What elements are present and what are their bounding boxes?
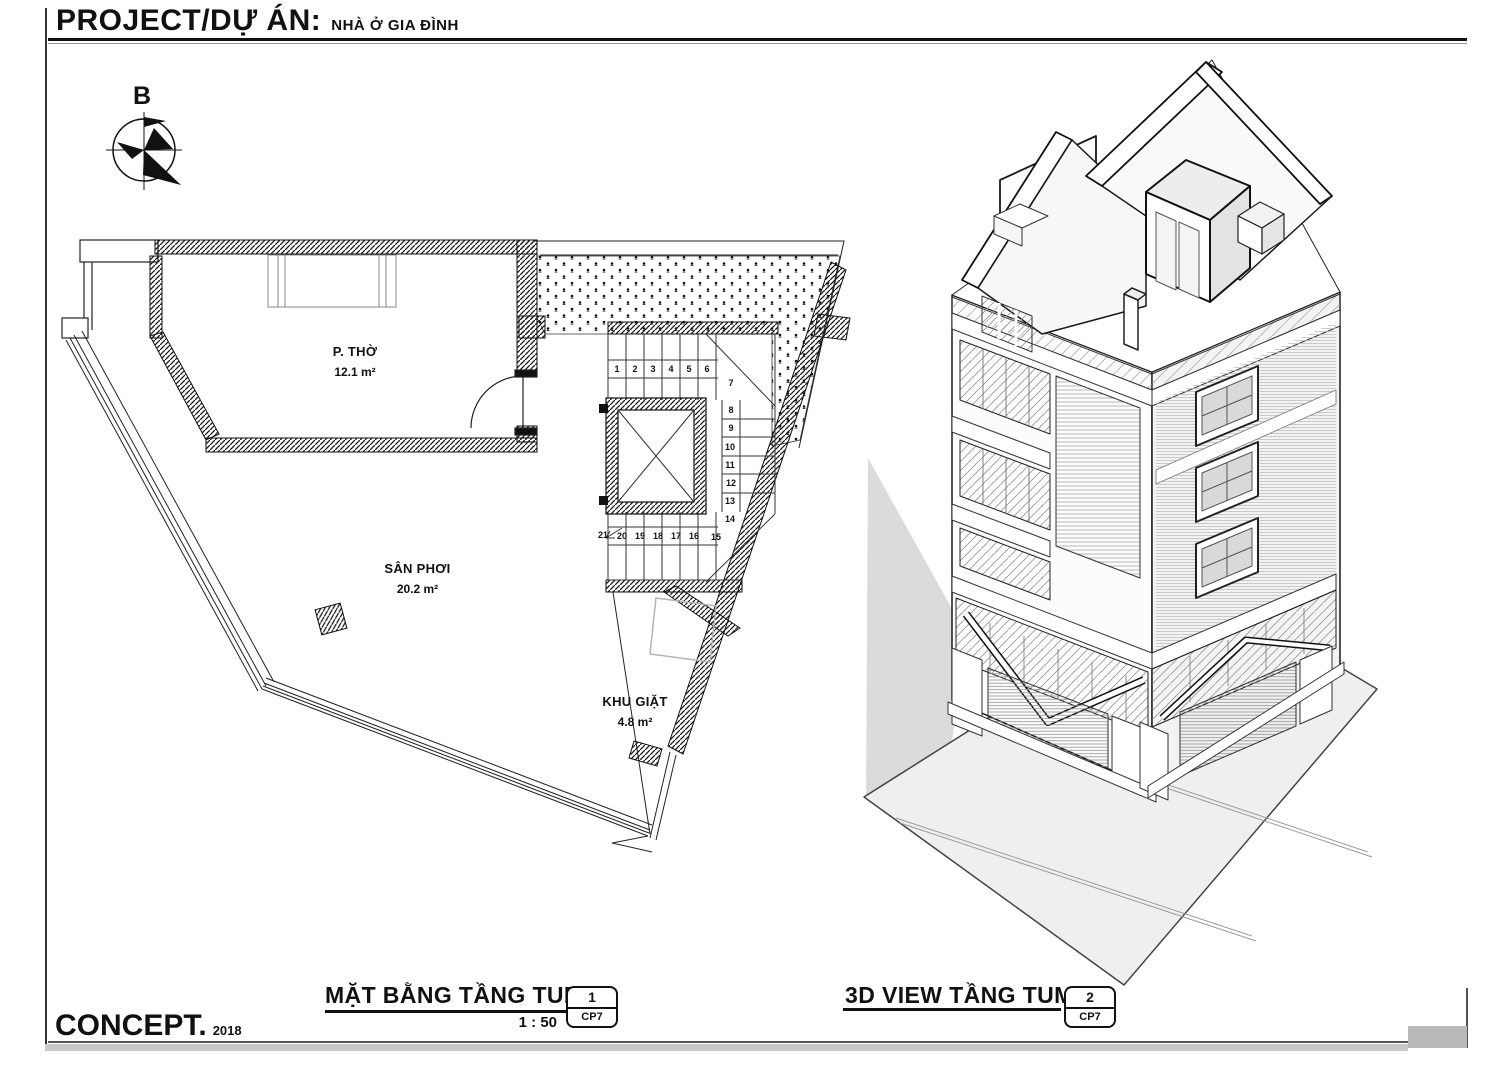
stair-number: 8 bbox=[728, 405, 733, 415]
project-label: PROJECT/DỰ ÁN: bbox=[56, 4, 321, 38]
sheet-left-border bbox=[45, 8, 47, 1048]
view3d-drawing bbox=[864, 60, 1377, 985]
compass-label: B bbox=[133, 82, 151, 111]
room-label-san: SÂN PHƠI 20.2 m² bbox=[355, 559, 480, 599]
view3d-tag: 2 CP7 bbox=[1064, 986, 1116, 1028]
sheet-linework bbox=[0, 0, 1493, 1067]
header-rule-thin bbox=[48, 43, 1467, 44]
stair-number: 18 bbox=[653, 531, 663, 541]
plan-tag: 1 CP7 bbox=[566, 986, 618, 1028]
plan-elevator bbox=[599, 398, 706, 514]
stair-number: 15 bbox=[711, 532, 721, 542]
stair-number: 11 bbox=[725, 460, 735, 470]
stair-number: 6 bbox=[704, 364, 709, 374]
plan-title: MẶT BẰNG TẦNG TUM bbox=[325, 982, 570, 1009]
room-name: SÂN PHƠI bbox=[355, 559, 480, 579]
plan-tag-code: CP7 bbox=[568, 1009, 616, 1026]
room-name: P. THỜ bbox=[295, 342, 415, 362]
north-arrow-icon bbox=[106, 112, 182, 190]
room-area: 4.8 m² bbox=[575, 712, 695, 732]
stair-number: 20 bbox=[617, 531, 627, 541]
stair-number: 9 bbox=[728, 423, 733, 433]
sheet-bottom-strip bbox=[45, 1044, 1408, 1051]
plan-drain bbox=[315, 603, 347, 635]
header-rule bbox=[48, 38, 1467, 41]
stair-number: 14 bbox=[725, 514, 735, 524]
stair-number: 3 bbox=[650, 364, 655, 374]
stair-number: 7 bbox=[728, 378, 733, 388]
room-name: KHU GIẶT bbox=[575, 692, 695, 712]
stair-number: 16 bbox=[689, 531, 699, 541]
view3d-title: 3D VIEW TẦNG TUM bbox=[845, 982, 1061, 1009]
plan-scale: 1 : 50 bbox=[437, 1014, 557, 1031]
stair-number: 2 bbox=[632, 364, 637, 374]
stair-number: 19 bbox=[635, 531, 645, 541]
plan-tag-number: 1 bbox=[568, 988, 616, 1007]
sheet-footer: CONCEPT. 2018 bbox=[55, 1009, 242, 1043]
view3d-tag-number: 2 bbox=[1066, 988, 1114, 1007]
footer-rule bbox=[48, 1041, 1408, 1043]
plan-title-rule bbox=[325, 1010, 568, 1013]
brand-year: 2018 bbox=[213, 1023, 242, 1038]
sheet-header: PROJECT/DỰ ÁN: NHÀ Ở GIA ĐÌNH bbox=[56, 4, 459, 38]
stair-number: 17 bbox=[671, 531, 681, 541]
room-area: 20.2 m² bbox=[355, 579, 480, 599]
stair-number: 12 bbox=[726, 478, 736, 488]
stair-number: 5 bbox=[686, 364, 691, 374]
room-area: 12.1 m² bbox=[295, 362, 415, 382]
project-name: NHÀ Ở GIA ĐÌNH bbox=[331, 17, 459, 34]
plan-door bbox=[471, 370, 537, 435]
view3d-title-rule bbox=[843, 1008, 1061, 1011]
plan-boundary-left bbox=[66, 331, 274, 691]
view3d-tag-code: CP7 bbox=[1066, 1009, 1114, 1026]
plan-altar-table bbox=[268, 255, 396, 307]
stair-number: 10 bbox=[725, 442, 735, 452]
stair-number: 4 bbox=[668, 364, 673, 374]
stair-number: 1 bbox=[614, 364, 619, 374]
room-label-tho: P. THỜ 12.1 m² bbox=[295, 342, 415, 382]
floor-plan bbox=[62, 240, 850, 852]
brand-label: CONCEPT. bbox=[55, 1009, 207, 1043]
sheet-corner-box bbox=[1408, 1026, 1467, 1048]
stair-number: 21 bbox=[598, 530, 608, 540]
plan-parapet-topleft bbox=[62, 240, 158, 338]
stair-number: 13 bbox=[725, 496, 735, 506]
room-label-giat: KHU GIẶT 4.8 m² bbox=[575, 692, 695, 732]
